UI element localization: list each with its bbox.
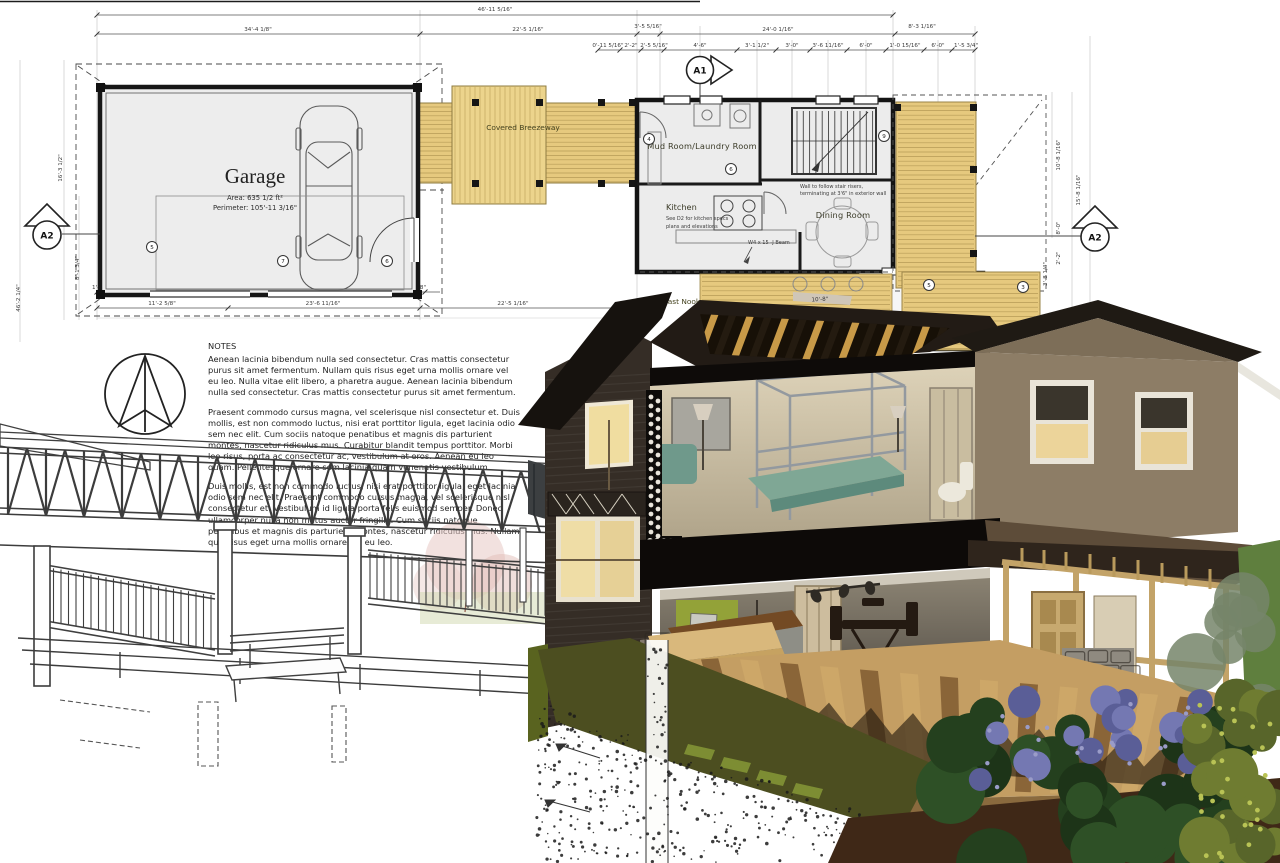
- balcony-lattice: [548, 492, 646, 516]
- right-wing: [952, 300, 1280, 552]
- lower-window: [556, 516, 640, 602]
- right-window-1: [1030, 380, 1094, 464]
- right-window-2: [1135, 392, 1193, 470]
- 3d-cutaway-render: 10'-8": [0, 0, 1280, 863]
- roof-dimension: 10'-8": [811, 297, 829, 304]
- architectural-presentation: 46'-11 5/16"34'-4 1/8"22'-5 1/16"3'-5 5/…: [0, 0, 1280, 863]
- gutter-fascia: [1238, 362, 1280, 400]
- leader-arrows: [545, 744, 600, 812]
